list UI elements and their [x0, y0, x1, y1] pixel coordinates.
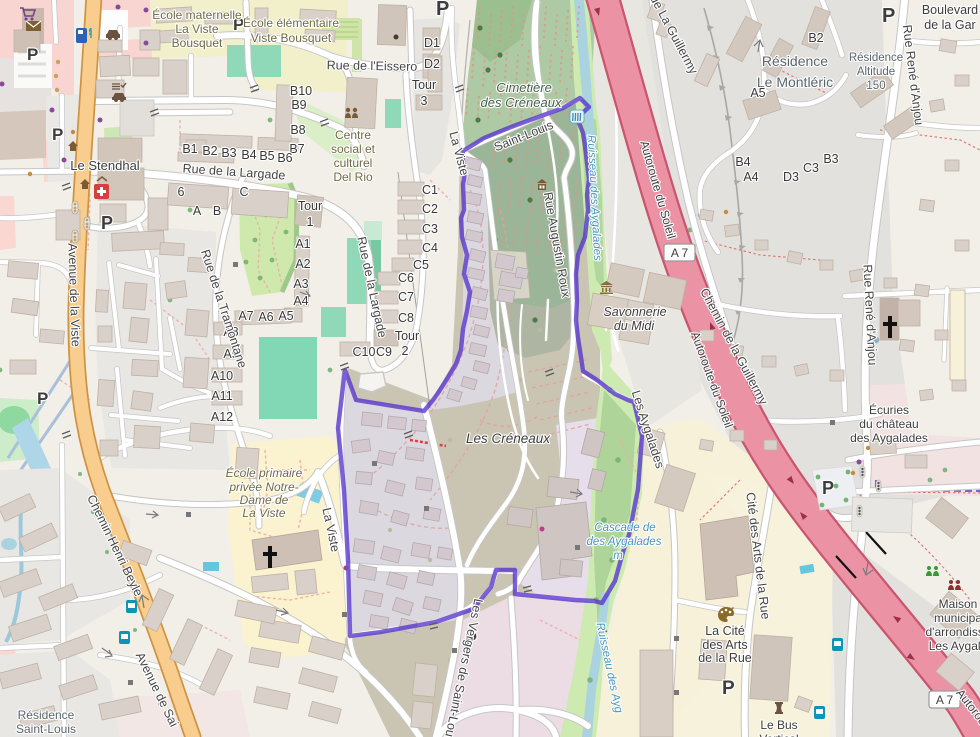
svg-text:D2: D2 — [424, 57, 440, 71]
svg-text:P: P — [822, 478, 834, 498]
svg-text:C7: C7 — [398, 290, 414, 304]
svg-text:D3: D3 — [783, 170, 799, 184]
svg-text:B6: B6 — [277, 151, 292, 165]
svg-text:C4: C4 — [422, 241, 438, 255]
svg-text:C3: C3 — [422, 222, 438, 236]
svg-text:Boulevard: Boulevard — [922, 3, 978, 17]
svg-text:B10: B10 — [290, 84, 312, 98]
svg-text:Tour: Tour — [298, 199, 322, 213]
svg-text:Saint-Louis: Saint-Louis — [16, 722, 76, 736]
svg-text:A10: A10 — [211, 369, 233, 383]
svg-text:B3: B3 — [823, 152, 838, 166]
svg-text:A4: A4 — [293, 294, 308, 308]
svg-text:B4: B4 — [735, 155, 750, 169]
svg-text:B2: B2 — [202, 144, 217, 158]
svg-text:Vertical: Vertical — [759, 732, 798, 737]
svg-text:Savonnerie: Savonnerie — [603, 305, 666, 319]
svg-text:A5: A5 — [278, 309, 293, 323]
svg-text:2: 2 — [402, 344, 409, 358]
svg-text:Viste Bousquet: Viste Bousquet — [251, 31, 332, 45]
svg-text:Rue de l'Eissero: Rue de l'Eissero — [327, 58, 418, 74]
svg-text:social et: social et — [331, 142, 376, 156]
svg-text:Del Rio: Del Rio — [333, 170, 373, 184]
svg-text:Tour: Tour — [412, 78, 436, 92]
svg-text:1: 1 — [307, 215, 314, 229]
svg-text:École primaire: École primaire — [226, 465, 303, 480]
svg-text:Maison: Maison — [939, 597, 978, 611]
svg-text:B3: B3 — [221, 146, 236, 160]
svg-text:Tour: Tour — [395, 329, 419, 343]
svg-text:Le Montléric: Le Montléric — [757, 74, 833, 90]
svg-text:Le Stendhal: Le Stendhal — [70, 158, 140, 173]
svg-text:C5: C5 — [413, 258, 429, 272]
svg-text:3: 3 — [421, 94, 428, 108]
svg-text:P: P — [37, 389, 48, 408]
svg-text:La Cité: La Cité — [705, 624, 745, 638]
svg-text:culturel: culturel — [334, 156, 373, 170]
svg-text:du Midi: du Midi — [614, 319, 656, 333]
svg-text:A12: A12 — [211, 410, 233, 424]
svg-text:A2: A2 — [295, 257, 310, 271]
svg-text:La Viste: La Viste — [242, 506, 285, 520]
svg-text:A 7: A 7 — [671, 246, 689, 260]
svg-text:Les Aygala: Les Aygala — [929, 639, 980, 653]
svg-text:A7: A7 — [238, 309, 253, 323]
svg-text:P: P — [101, 213, 113, 233]
svg-text:Centre: Centre — [335, 128, 371, 142]
svg-text:P: P — [882, 5, 895, 27]
svg-text:du château: du château — [859, 417, 918, 431]
svg-text:6: 6 — [178, 185, 185, 199]
svg-text:A: A — [193, 204, 202, 218]
svg-text:D1: D1 — [424, 36, 440, 50]
svg-text:B2: B2 — [808, 31, 823, 45]
svg-text:B: B — [213, 204, 221, 218]
svg-text:Cascade de: Cascade de — [594, 522, 655, 534]
svg-text:Les Créneaux: Les Créneaux — [466, 431, 551, 446]
svg-text:C6: C6 — [398, 271, 414, 285]
svg-text:des Aygalades: des Aygalades — [850, 431, 928, 445]
svg-text:des Aygalades: des Aygalades — [587, 536, 662, 548]
svg-text:150: 150 — [866, 80, 885, 92]
svg-text:P: P — [436, 0, 449, 20]
svg-text:des Créneaux: des Créneaux — [481, 95, 562, 110]
svg-text:A 7: A 7 — [936, 693, 954, 707]
svg-text:des Arts: des Arts — [702, 638, 747, 652]
svg-text:Écuries: Écuries — [869, 402, 909, 417]
svg-text:C10: C10 — [353, 345, 376, 359]
svg-text:A6: A6 — [258, 310, 273, 324]
svg-text:École maternelle: École maternelle — [152, 7, 242, 22]
svg-text:B8: B8 — [290, 123, 305, 137]
svg-text:A4: A4 — [743, 170, 758, 184]
svg-text:B9: B9 — [291, 98, 306, 112]
svg-text:Cimetière: Cimetière — [496, 80, 552, 95]
svg-text:P: P — [27, 45, 38, 64]
svg-text:P: P — [52, 125, 63, 144]
svg-text:A11: A11 — [211, 389, 232, 403]
svg-text:B4: B4 — [241, 148, 256, 162]
svg-text:B1: B1 — [182, 142, 197, 156]
svg-text:C3: C3 — [803, 161, 819, 175]
svg-text:C9: C9 — [376, 345, 392, 359]
svg-text:B5: B5 — [259, 149, 274, 163]
svg-text:C8: C8 — [398, 311, 414, 325]
svg-text:P: P — [722, 678, 735, 699]
svg-text:de la Gar: de la Gar — [924, 18, 975, 32]
svg-text:Résidence: Résidence — [18, 708, 75, 722]
svg-text:d'arrondisse: d'arrondisse — [926, 625, 980, 639]
svg-text:Résidence: Résidence — [849, 52, 903, 64]
svg-text:m: m — [613, 550, 623, 562]
svg-text:privée Notre-: privée Notre- — [228, 480, 298, 494]
svg-text:A5: A5 — [750, 86, 765, 100]
svg-text:Le Bus: Le Bus — [760, 718, 797, 732]
svg-text:École élémentaire: École élémentaire — [243, 15, 339, 30]
svg-text:Altitude: Altitude — [857, 66, 895, 78]
svg-text:Résidence: Résidence — [762, 53, 828, 69]
svg-text:de la Rue: de la Rue — [698, 651, 752, 665]
svg-text:A3: A3 — [293, 277, 308, 291]
svg-text:Dame de: Dame de — [240, 493, 289, 507]
svg-text:A1: A1 — [295, 237, 310, 251]
svg-text:La Viste: La Viste — [175, 22, 218, 36]
svg-text:C: C — [239, 185, 248, 199]
svg-text:C1: C1 — [422, 183, 438, 197]
svg-text:C2: C2 — [422, 202, 438, 216]
svg-text:municipa: municipa — [934, 611, 980, 625]
svg-text:Bousquet: Bousquet — [172, 36, 223, 50]
